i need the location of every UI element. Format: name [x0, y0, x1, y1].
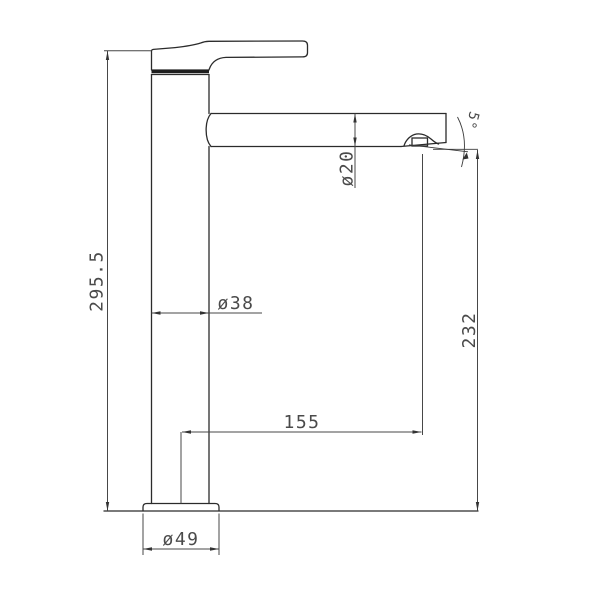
angle-tilted-line [409, 145, 468, 152]
arrow-left [182, 430, 191, 433]
arrow-up [106, 51, 109, 60]
arrow-down [353, 138, 356, 147]
arrow-down [106, 502, 109, 511]
arrow-up [353, 114, 356, 123]
spout-diameter-label: ø20 [336, 149, 357, 186]
arrow-right [200, 311, 209, 314]
faucet-outline [104, 41, 478, 511]
spout-reach-label: 155 [283, 412, 320, 433]
dim-overall-height: 295.5 [86, 51, 151, 511]
arrow-left [143, 547, 152, 550]
arrow-right [210, 547, 219, 550]
base-diameter-label: ø49 [162, 529, 199, 550]
dim-body-diameter: ø38 [152, 293, 263, 315]
base-plate [143, 504, 219, 512]
dim-base-diameter: ø49 [143, 514, 219, 556]
faucet-dimension-drawing: 5° 295.5 ø38 ø20 155 232 [0, 0, 600, 600]
outlet-angle-label: 5° [462, 110, 482, 131]
technical-drawing-canvas: 5° 295.5 ø38 ø20 155 232 [0, 0, 600, 600]
overall-height-label: 295.5 [86, 250, 107, 312]
arrow-right [413, 430, 422, 433]
dim-spout-reach: 155 [181, 154, 423, 504]
dim-spout-diameter: ø20 [336, 114, 357, 189]
handle-joint-band [152, 70, 210, 73]
arrow-down [476, 502, 479, 511]
arrow-up [476, 150, 479, 159]
handle-lever [152, 41, 308, 70]
outlet-height-label: 232 [459, 311, 480, 348]
arrow-left [152, 311, 161, 314]
dim-outlet-height: 232 [459, 150, 480, 511]
body-diameter-label: ø38 [217, 293, 254, 314]
spout-body-fillet [206, 114, 211, 147]
